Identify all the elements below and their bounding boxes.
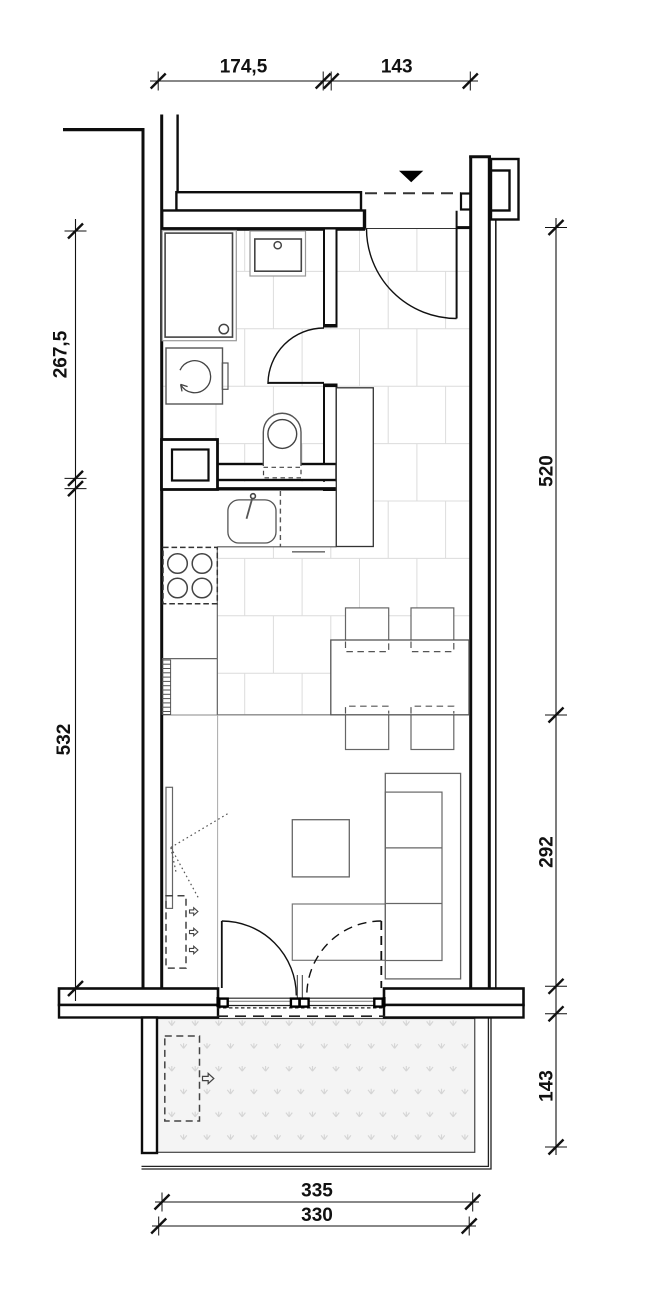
svg-text:520: 520 — [537, 455, 558, 487]
svg-text:532: 532 — [54, 724, 75, 756]
svg-text:330: 330 — [301, 1205, 333, 1226]
svg-text:267,5: 267,5 — [51, 330, 72, 378]
svg-text:335: 335 — [301, 1181, 333, 1202]
svg-text:143: 143 — [381, 57, 413, 78]
svg-text:292: 292 — [537, 836, 558, 868]
svg-text:174,5: 174,5 — [220, 57, 268, 78]
svg-text:143: 143 — [537, 1070, 558, 1102]
